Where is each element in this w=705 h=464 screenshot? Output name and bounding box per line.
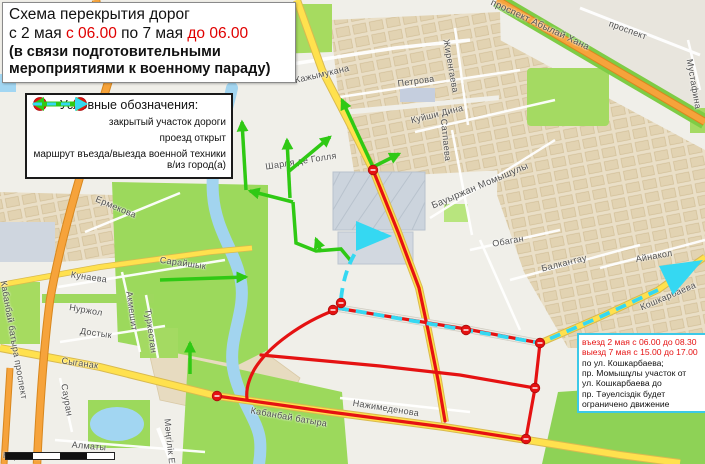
- notice-line: пр. Момышұлы участок от: [582, 368, 705, 378]
- road-closure-map: КажымуканаПетроваЖиренгаеваКуйши ДинаСат…: [0, 0, 705, 464]
- map-title-line3: (в связи подготовительными: [9, 44, 289, 60]
- legend-item-military-route: маршрут въезда/выезда военной техники в/…: [32, 149, 226, 171]
- map-title-line1: Схема перекрытия дорог: [9, 6, 289, 24]
- restriction-notice-box: въезд 2 мая с 06.00 до 08.30 выезд 7 мая…: [577, 333, 705, 413]
- notice-line: ул. Кошкарбаева до: [582, 378, 705, 388]
- legend-item-open-road: проезд открыт: [32, 133, 226, 144]
- notice-line: ограничено движение: [582, 399, 705, 409]
- notice-line: пр. Тәуелсіздік будет: [582, 389, 705, 399]
- notice-line: по ул. Кошкарбаева;: [582, 358, 705, 368]
- legend-item-closed-road: закрытый участок дороги STOP STOP: [32, 117, 226, 128]
- notice-line: выезд 7 мая с 15.00 до 17.00: [582, 347, 705, 357]
- military-route-icon: [31, 95, 89, 113]
- notice-line: въезд 2 мая с 06.00 до 08.30: [582, 337, 705, 347]
- map-title-line2: с 2 мая с 06.00 по 7 мая до 06.00: [9, 25, 289, 43]
- scale-bar: [5, 452, 115, 460]
- map-title-line4: мероприятиями к военному параду): [9, 61, 289, 77]
- map-title-box: Схема перекрытия дорог с 2 мая с 06.00 п…: [2, 2, 296, 83]
- legend-box: Условные обозначения: закрытый участок д…: [25, 93, 233, 179]
